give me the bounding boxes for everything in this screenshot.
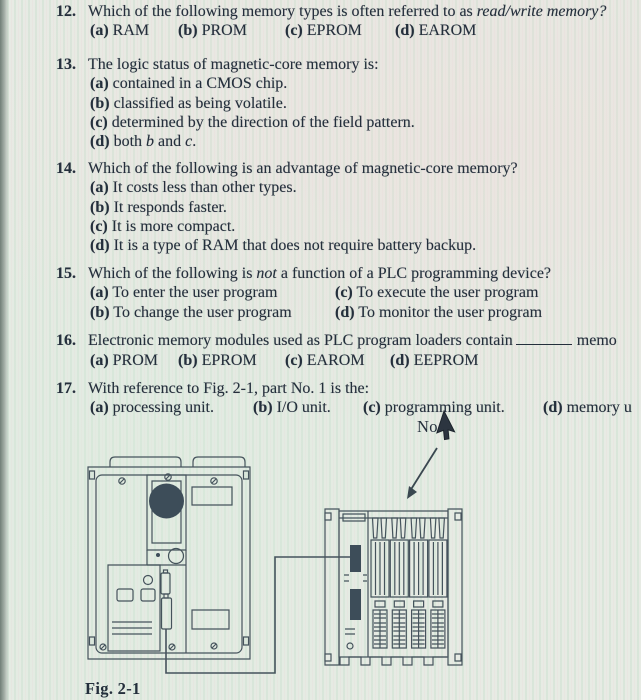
option-a: (a) To enter the user program (90, 283, 335, 302)
mouse-cursor-icon (436, 411, 460, 442)
left-flange (325, 509, 339, 665)
question-14: 14. Which of the following is an advanta… (0, 159, 641, 256)
question-number: 16. (56, 331, 76, 350)
question-number: 15. (56, 264, 76, 283)
option-d: (d) EEPROM (390, 351, 478, 370)
plc-left-unit-drawing (88, 457, 250, 659)
question-text: Which of the following memory types is o… (88, 2, 641, 21)
question-number: 12. (56, 2, 76, 21)
castellated-base (340, 657, 447, 665)
option-a: (a) It costs less than other types. (90, 178, 641, 197)
question-number: 14. (56, 159, 76, 178)
option-d: (d) EAROM (395, 21, 476, 40)
options-row-1: (a) To enter the user program(c) To exec… (90, 283, 641, 302)
small-screw (156, 553, 160, 557)
option-b: (b) EPROM (178, 351, 285, 370)
rack-connector-top (350, 545, 361, 572)
interconnect-cable (166, 557, 352, 673)
knob (169, 549, 184, 564)
port-connector (161, 573, 170, 594)
question-16: 16. Electronic memory modules used as PL… (0, 331, 641, 370)
question-text: Which of the following is not a function… (88, 264, 641, 283)
question-text: The logic status of magnetic-core memory… (88, 55, 641, 74)
options-row: (a) PROM (b) EPROM (c) EAROM (d) EEPROM (90, 351, 641, 370)
question-number: 13. (56, 55, 76, 74)
options-row: (a) RAM (b) PROM (c) EPROM (d) EAROM (90, 21, 641, 40)
panel-port (117, 589, 133, 601)
option-c: (c) EPROM (285, 21, 395, 40)
option-c: (c) EAROM (285, 351, 390, 370)
panel-port (141, 589, 155, 601)
question-text: Which of the following is an advantage o… (88, 159, 641, 178)
question-number: 17. (56, 379, 76, 398)
option-b: (b) It responds faster. (90, 198, 641, 217)
option-d: (d) It is a type of RAM that does not re… (90, 236, 641, 255)
question-13: 13. The logic status of magnetic-core me… (0, 55, 641, 152)
option-d: (d) both b and c. (90, 132, 641, 151)
option-a: (a) contained in a CMOS chip. (90, 74, 641, 93)
rack-connector-bottom (350, 589, 361, 620)
panel-hole (144, 576, 153, 585)
option-a: (a) PROM (90, 351, 178, 370)
answer-blank (516, 331, 572, 345)
option-c: (c) determined by the direction of the f… (90, 113, 641, 132)
question-15: 15. Which of the following is not a func… (0, 264, 641, 322)
question-text: With reference to Fig. 2-1, part No. 1 i… (88, 379, 641, 398)
question-12: 12. Which of the following memory types … (0, 2, 641, 41)
option-b: (b) To change the user program (90, 303, 335, 322)
question-list: 12. Which of the following memory types … (0, 0, 641, 418)
dark-lens (149, 484, 184, 519)
option-b: (b) PROM (178, 21, 285, 40)
label-plate (192, 487, 232, 505)
option-c: (c) To execute the user program (335, 284, 538, 301)
vent-lines (112, 622, 152, 634)
fig-2-1-drawing (0, 405, 641, 700)
screw (347, 643, 353, 649)
label-dashes (345, 629, 355, 634)
top-tab (110, 457, 181, 467)
plc-io-rack-drawing (325, 509, 462, 665)
figure-caption: Fig. 2-1 (85, 679, 141, 699)
option-d: (d) To monitor the user program (335, 304, 542, 321)
option-c: (c) It is more compact. (90, 217, 641, 236)
indicator-dashes (344, 575, 367, 581)
top-tab (193, 457, 245, 467)
question-text: Electronic memory modules used as PLC pr… (88, 331, 641, 350)
annotation-arrow (407, 448, 437, 499)
options-row-2: (b) To change the user program(d) To mon… (90, 303, 641, 322)
label-plate (192, 610, 229, 629)
cable-connector (162, 598, 172, 629)
scanned-textbook-page: 12. Which of the following memory types … (0, 0, 641, 700)
option-a: (a) RAM (90, 21, 178, 40)
option-b: (b) classified as being volatile. (90, 94, 641, 113)
right-flange (448, 509, 462, 665)
